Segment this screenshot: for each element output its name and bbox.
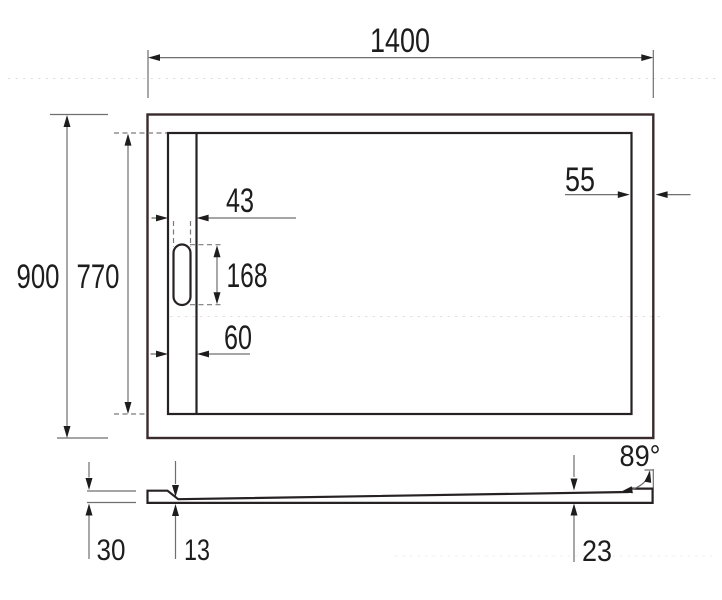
dim-slot-width-arrows [156,215,209,222]
section-view: 30 13 23 89° [86,440,661,568]
technical-drawing-page: 1400 900 770 43 168 [0,0,722,600]
dim-slot-width-label: 43 [226,182,254,220]
dim-channel-width-arrows [156,351,209,358]
dim-inner-depth: 770 [77,133,168,414]
dim-rim-offset: 55 [565,161,691,199]
dim-channel-width-label: 60 [224,319,252,357]
dim-inner-depth-dashed-extensions [114,133,167,414]
drain-slot [174,245,191,306]
dim-rim-thickness-label: 23 [582,535,612,568]
dim-slot-width-dashed-extensions [174,221,191,247]
dim-overall-width-label: 1400 [370,22,430,60]
dim-overall-depth-label: 900 [17,258,60,296]
angle-annotation: 89° [620,440,661,493]
shower-tray-drawing-canvas: 1400 900 770 43 168 [0,0,722,600]
dim-rim-thickness: 23 [571,455,613,568]
dim-overall-width: 1400 [148,22,653,98]
dim-drain-thickness-label: 13 [184,534,210,567]
dim-slot-length-label: 168 [227,257,268,295]
dim-edge-height-arrows [86,478,93,516]
dim-edge-height-label: 30 [97,534,126,567]
dim-channel-width: 60 [151,319,253,357]
angle-label: 89° [620,440,661,473]
dim-slot-width: 43 [152,182,297,247]
dim-rim-offset-arrows [618,191,668,198]
dim-edge-height: 30 [86,462,137,567]
dim-inner-depth-label: 770 [77,258,120,296]
tray-section-profile [148,489,653,503]
dim-slot-length: 168 [190,245,268,305]
dim-drain-thickness: 13 [172,461,210,567]
dim-rim-offset-label: 55 [565,161,595,199]
